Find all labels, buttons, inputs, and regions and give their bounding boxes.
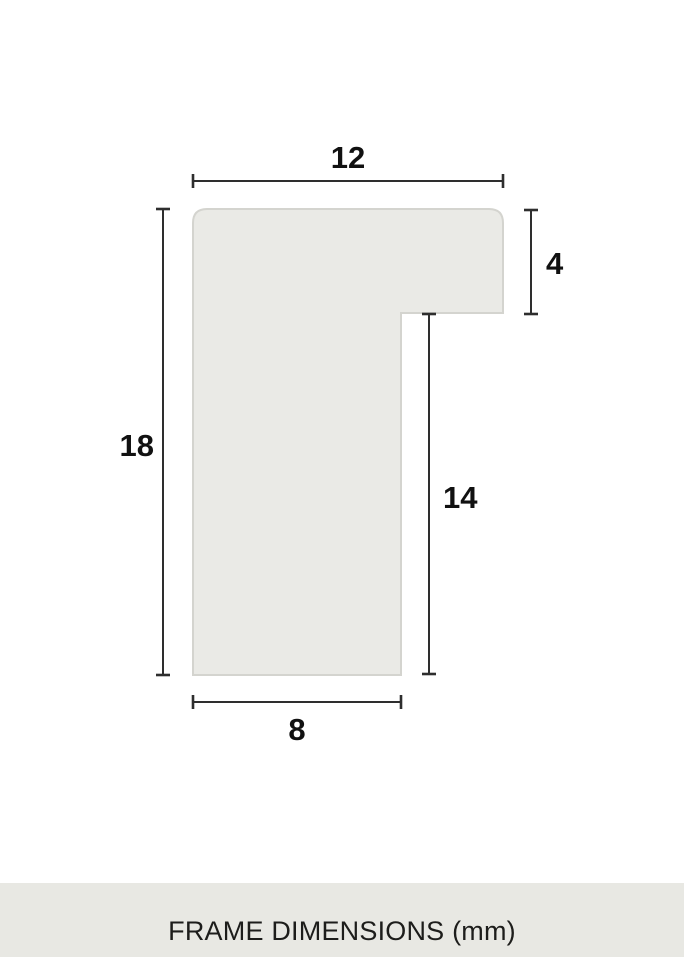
dimension-left-height: 18 <box>120 209 170 675</box>
dim-label-bottom-width: 8 <box>288 712 305 747</box>
footer-bar: FRAME DIMENSIONS (mm) <box>0 883 684 957</box>
dim-label-inner-height: 14 <box>443 480 478 515</box>
page: 12 18 4 14 <box>0 0 684 957</box>
dimension-inner-height: 14 <box>422 314 478 674</box>
dim-label-right-flange: 4 <box>546 246 564 281</box>
frame-profile-diagram: 12 18 4 14 <box>0 0 684 883</box>
dim-label-top-width: 12 <box>331 140 365 175</box>
dimension-right-flange: 4 <box>524 210 564 314</box>
dimension-top-width: 12 <box>193 140 503 188</box>
dim-label-left-height: 18 <box>120 428 154 463</box>
footer-caption: FRAME DIMENSIONS (mm) <box>168 916 516 947</box>
dimension-bottom-width: 8 <box>193 695 401 747</box>
profile-drawing-svg: 12 18 4 14 <box>0 0 684 883</box>
frame-profile-shape <box>193 209 503 675</box>
